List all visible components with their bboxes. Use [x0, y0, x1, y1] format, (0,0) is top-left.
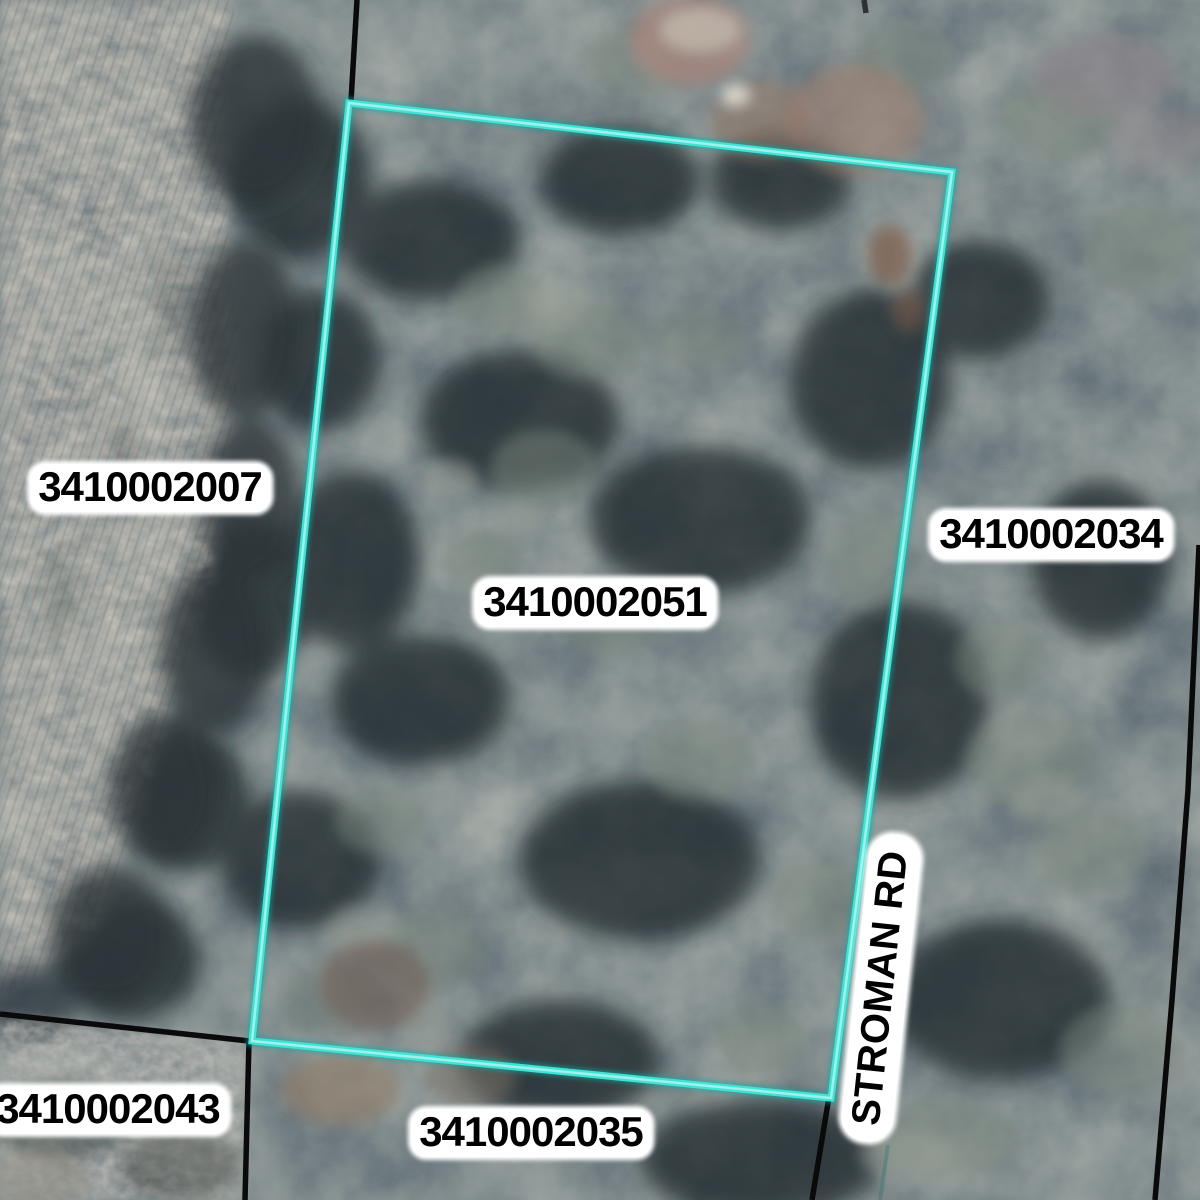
- parcel-label-southwest: 3410002043: [0, 1086, 228, 1134]
- parcel-label-west: 3410002007: [30, 464, 270, 512]
- parcel-label-south: 3410002035: [411, 1109, 651, 1157]
- parcel-label-selected: 3410002051: [475, 579, 715, 627]
- parcel-label-east: 3410002034: [931, 511, 1171, 559]
- map-canvas[interactable]: 3410002007 3410002051 3410002034 3410002…: [0, 0, 1200, 1200]
